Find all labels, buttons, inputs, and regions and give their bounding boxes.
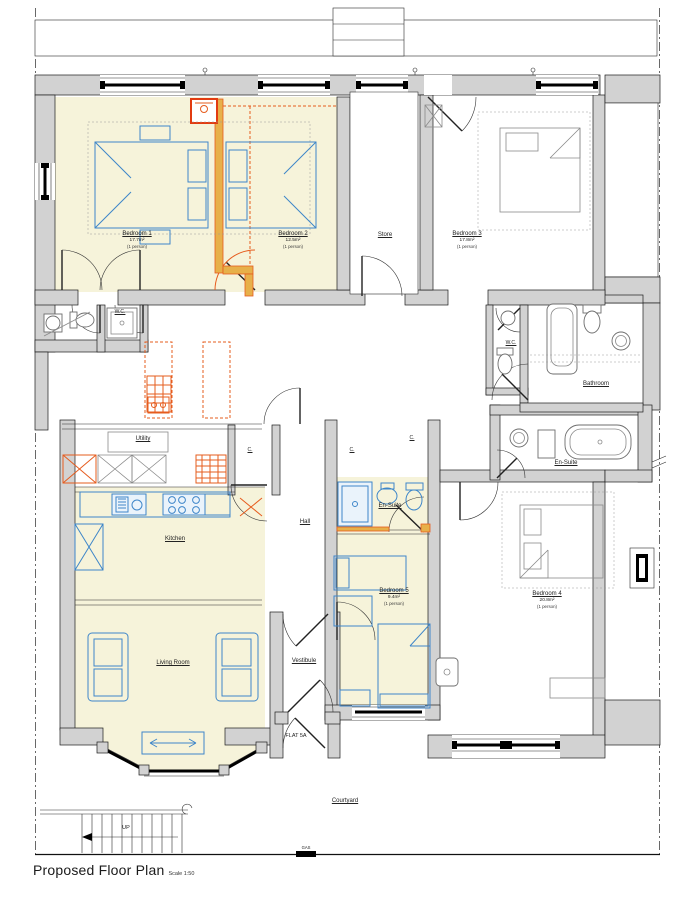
label-wc-inner: W.C.: [506, 340, 517, 346]
window-bedroom5-south: [352, 705, 425, 720]
wc-inner-fixtures: [497, 348, 513, 374]
window-bedroom4-east: [630, 548, 654, 588]
label-bedroom-5: Bedroom 5 9.4m² (1 person): [379, 588, 408, 606]
label-wc-left: W.C.: [115, 309, 126, 315]
drawing-title-text: Proposed Floor Plan: [33, 862, 164, 878]
label-flat-5a: FLAT 5A: [285, 733, 306, 739]
label-bedroom-1: Bedroom 1 17.7m² (1 person): [122, 231, 151, 249]
label-cupboard-2: C.: [350, 447, 355, 453]
label-cupboard-3: C.: [410, 435, 415, 441]
stairs: [40, 804, 192, 853]
window-left-wall: [35, 163, 55, 200]
window-bedroom1: [100, 75, 185, 95]
window-bedroom3: [536, 75, 598, 95]
wc-left-fixtures: [44, 312, 94, 336]
utility-units-grey: [98, 432, 168, 483]
drawing-title: Proposed Floor PlanScale 1:50: [33, 862, 194, 880]
label-bedroom-4: Bedroom 4 20.8m² (1 person): [532, 591, 561, 609]
orange-units-hall: [145, 342, 230, 418]
gas-meter: [296, 851, 316, 857]
label-bathroom: Bathroom: [583, 381, 609, 388]
label-gas: GAS: [302, 845, 311, 850]
label-bedroom-2: Bedroom 2 12.5m² (1 person): [278, 231, 307, 249]
floor-plan-page: Bedroom 1 17.7m² (1 person) Bedroom 2 12…: [0, 0, 694, 900]
label-vestibule: Vestibule: [292, 658, 316, 665]
bedroom4-basin: [436, 658, 458, 686]
label-utility: Utility: [136, 436, 151, 443]
label-living-room: Living Room: [156, 660, 189, 667]
label-ensuite-right: En-Suite: [554, 460, 577, 467]
label-up: UP: [122, 825, 130, 831]
drawing-scale: Scale 1:50: [168, 871, 194, 877]
label-courtyard: Courtyard: [332, 798, 358, 805]
window-store: [356, 75, 408, 95]
floor-plan-svg: [0, 0, 694, 900]
label-bedroom-3: Bedroom 3 17.8m² (1 person): [452, 231, 481, 249]
ensuite-right-fixtures: [510, 425, 631, 459]
window-bedroom2: [258, 75, 330, 95]
label-ensuite-mid: En-Suite: [378, 503, 401, 510]
window-bedroom4-south: [452, 735, 560, 758]
label-kitchen: Kitchen: [165, 536, 185, 543]
orange-units-utility: [63, 455, 226, 483]
label-cupboard-1: C.: [248, 447, 253, 453]
label-hall: Hall: [300, 519, 310, 526]
label-store: Store: [378, 232, 392, 239]
